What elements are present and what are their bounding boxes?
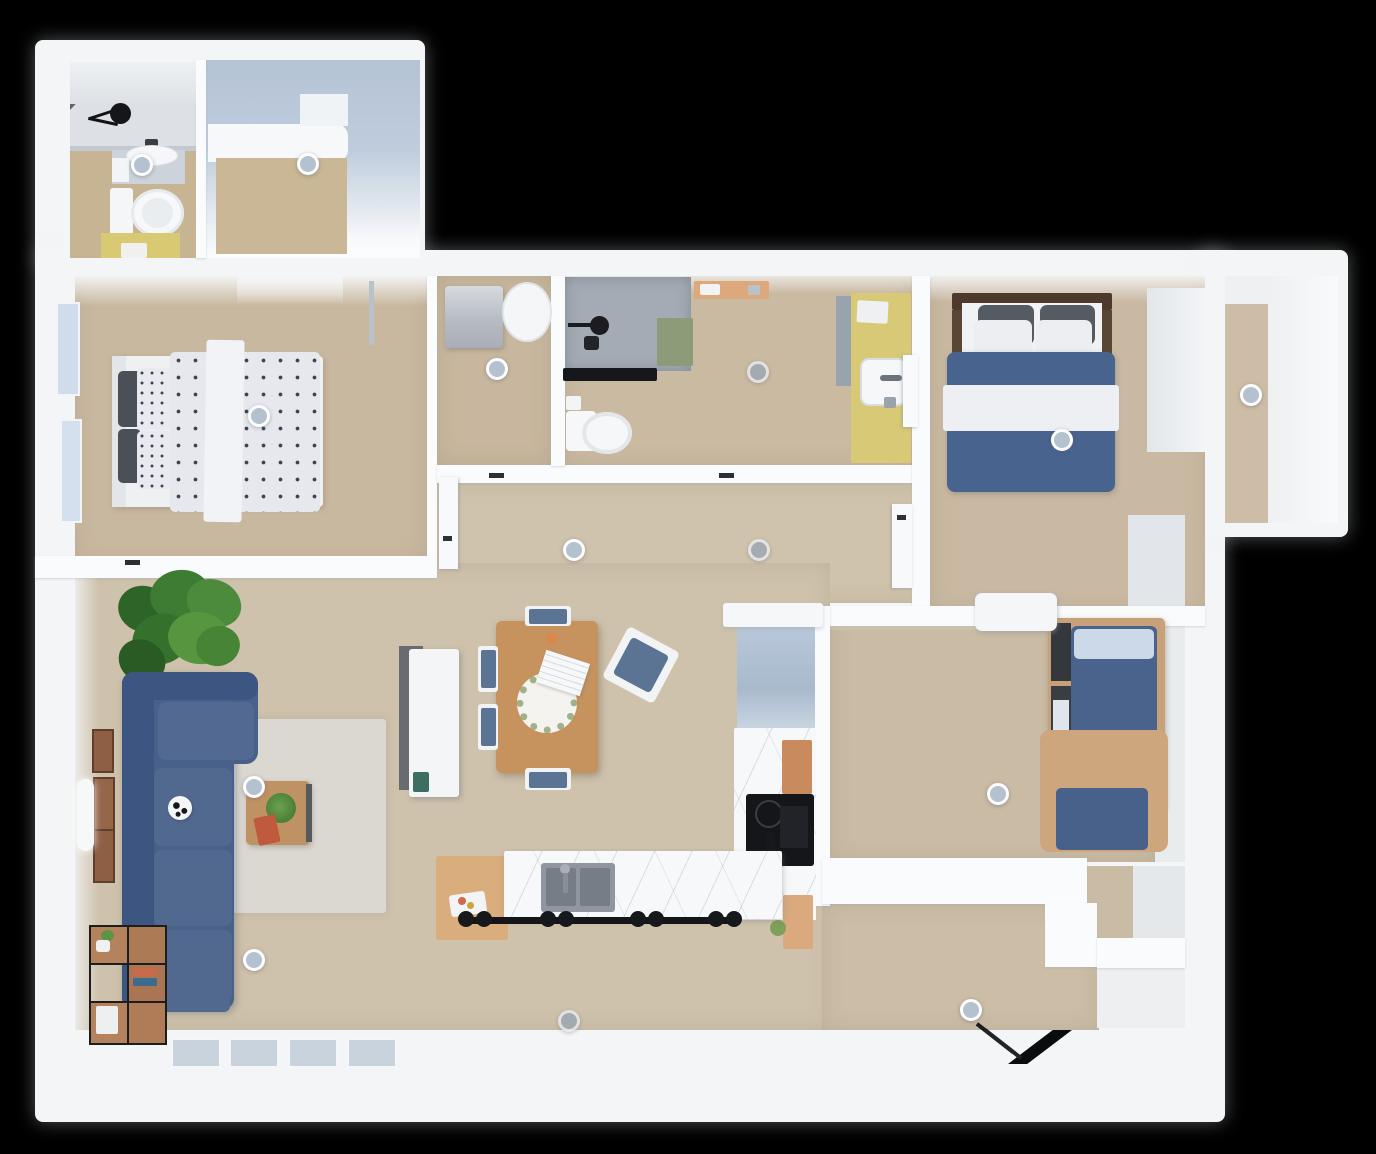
bunk-dark-panel-1 [1051,623,1071,681]
kitchen-cutting-board [782,740,812,794]
dining-chair-left-1-seat [481,650,496,688]
kitchen-lower-cabinet [783,895,813,949]
bar-stool-knob-2 [476,911,492,927]
wall-art-frame-2 [93,777,115,831]
bedroom1-wall-rail [369,281,374,345]
living-window-1 [170,1037,222,1069]
shower-valve-icon [584,336,599,350]
wall-bedroom1-right [427,276,437,566]
hallway-door-panel-left [439,477,458,569]
vanity-towel [856,300,888,324]
bedroom1-window-1 [56,302,80,396]
bar-stool-knob-7 [708,911,724,927]
ceiling-light-hallway-2 [748,539,770,561]
fridge [737,624,815,732]
crate-books-white [96,1006,118,1034]
soccer-ball [168,796,192,820]
serving-food-1 [458,897,466,905]
upper-cabinet-towel [121,243,147,258]
bar-stool-knob-3 [540,911,556,927]
bath-mat [657,318,693,366]
upper-room-wood-patch [216,158,347,254]
bar-stool-knob-6 [648,911,664,927]
bunk-ladder-slot [1053,700,1069,730]
upper-bath-ceiling-band [70,62,196,104]
entry-gray-upper [1133,866,1185,940]
dining-orange [546,633,557,644]
door-jamb-tick-1 [489,473,504,478]
wall-upper-unit-divider [196,60,206,258]
ceiling-light-laundry [486,358,508,380]
crate-shelf-cell-3 [89,963,129,1003]
island-faucet-stem [563,873,568,893]
crate-cup [96,940,110,952]
island-sink-basin-left [546,868,576,906]
hallway-door-handle-left [443,536,452,541]
wall-entry-ell [1045,903,1097,967]
wall-art-frame-1 [92,729,114,773]
upper-vanity-cabinet [112,158,129,182]
walkin-closet-wood [1225,304,1268,523]
bunk-lower-mattress [1056,788,1148,850]
wall-bunkroom-bottom [822,858,1087,904]
ceiling-light-bunkroom [987,783,1009,805]
wall-hallway-top [437,465,930,483]
dining-chair-top-seat [529,609,567,624]
mirror-head-icon [110,103,131,124]
upper-toilet-seat [142,198,173,228]
bedroom1-window-2 [60,419,82,523]
door-jamb-tick-2 [719,473,734,478]
sofa-chaise-cushion [158,702,254,760]
hallway-door-handle-right [897,515,906,520]
ceiling-light-bedroom2 [1051,429,1073,451]
living-window-3 [287,1037,339,1069]
sofa-cushion-2 [154,850,232,926]
coffee-table-edge [306,784,312,842]
wall-bedroom1-bottom [35,556,437,578]
living-window-2 [228,1037,280,1069]
dining-chair-left-2-seat [481,708,496,746]
bedroom1-corner-wedge [237,276,343,304]
bed1-pillow-dotted-2 [137,431,171,489]
ceiling-light-entry [960,999,982,1021]
upper-room-counter-notch [300,94,348,126]
wall-art-frame-3 [93,829,115,883]
bar-stool-knob-4 [558,911,574,927]
ceiling-light-living-2 [243,949,265,971]
shower-arm-icon [568,323,594,327]
toilet-tank [566,396,581,410]
dining-chair-bottom-seat [529,772,567,788]
ceiling-light-bathroom [747,361,769,383]
crate-shelf-cell-6 [127,1001,167,1045]
kitchen-plant [770,920,786,936]
crate-book-red [133,968,157,976]
crate-shelf-cell-2 [127,925,167,965]
wall-entry-strip [1097,938,1185,968]
vanity-soap [884,397,896,408]
bath-shelf-item [748,285,760,295]
washer [445,286,503,348]
ceiling-light-living-1 [243,776,265,798]
bar-stool-knob-1 [458,911,474,927]
bunkroom-bench [975,593,1057,631]
bar-rail [461,917,735,924]
ceiling-light-living-3 [558,1010,580,1032]
ceiling-light-hallway-1 [563,539,585,561]
floorplan-scene [0,0,1376,1154]
upper-room-counter-ell [208,124,348,162]
sofa-cushion-1 [154,768,232,846]
bunk-pillow [1074,629,1154,659]
floor-lamp [77,779,94,851]
stove-griddle [780,806,808,848]
kitchen-pass-counter [723,603,823,627]
bed2-runner-blanket [943,385,1119,431]
laundry-basket [502,282,552,342]
serving-food-2 [467,902,474,909]
living-window-4 [346,1037,398,1069]
bathroom-door-panel [903,355,918,427]
bed1-pillow-dotted-1 [137,368,171,430]
ceiling-light-upper-bath [131,154,153,176]
bath-shelf-dish [700,284,720,295]
upper-toilet-tank [110,188,133,235]
toilet-bowl [582,412,632,454]
ceiling-light-bedroom1 [248,405,270,427]
door-jamb-tick-3 [125,560,140,565]
shower-screen [563,368,657,381]
bar-stool-knob-5 [630,911,646,927]
island-sink-basin-right [580,868,610,906]
entry-mass-lower [1097,966,1185,1028]
ceiling-light-upper-room [297,153,319,175]
tv-stand-item [413,772,429,792]
walkin-closet-glow [1268,276,1338,523]
crate-book-blue [133,978,157,986]
vanity-faucet-icon [880,375,902,381]
stove-burner-icon [755,800,783,828]
ceiling-light-walkin-closet [1240,384,1262,406]
bed1-duvet-dotted [170,352,320,512]
wall-bedroom2-left [912,276,930,616]
bar-stool-knob-8 [726,911,742,927]
bedroom2-closet-lower [1128,515,1185,612]
bedroom2-closet-wall [1147,288,1205,452]
bed1-runner-blanket [203,340,244,523]
